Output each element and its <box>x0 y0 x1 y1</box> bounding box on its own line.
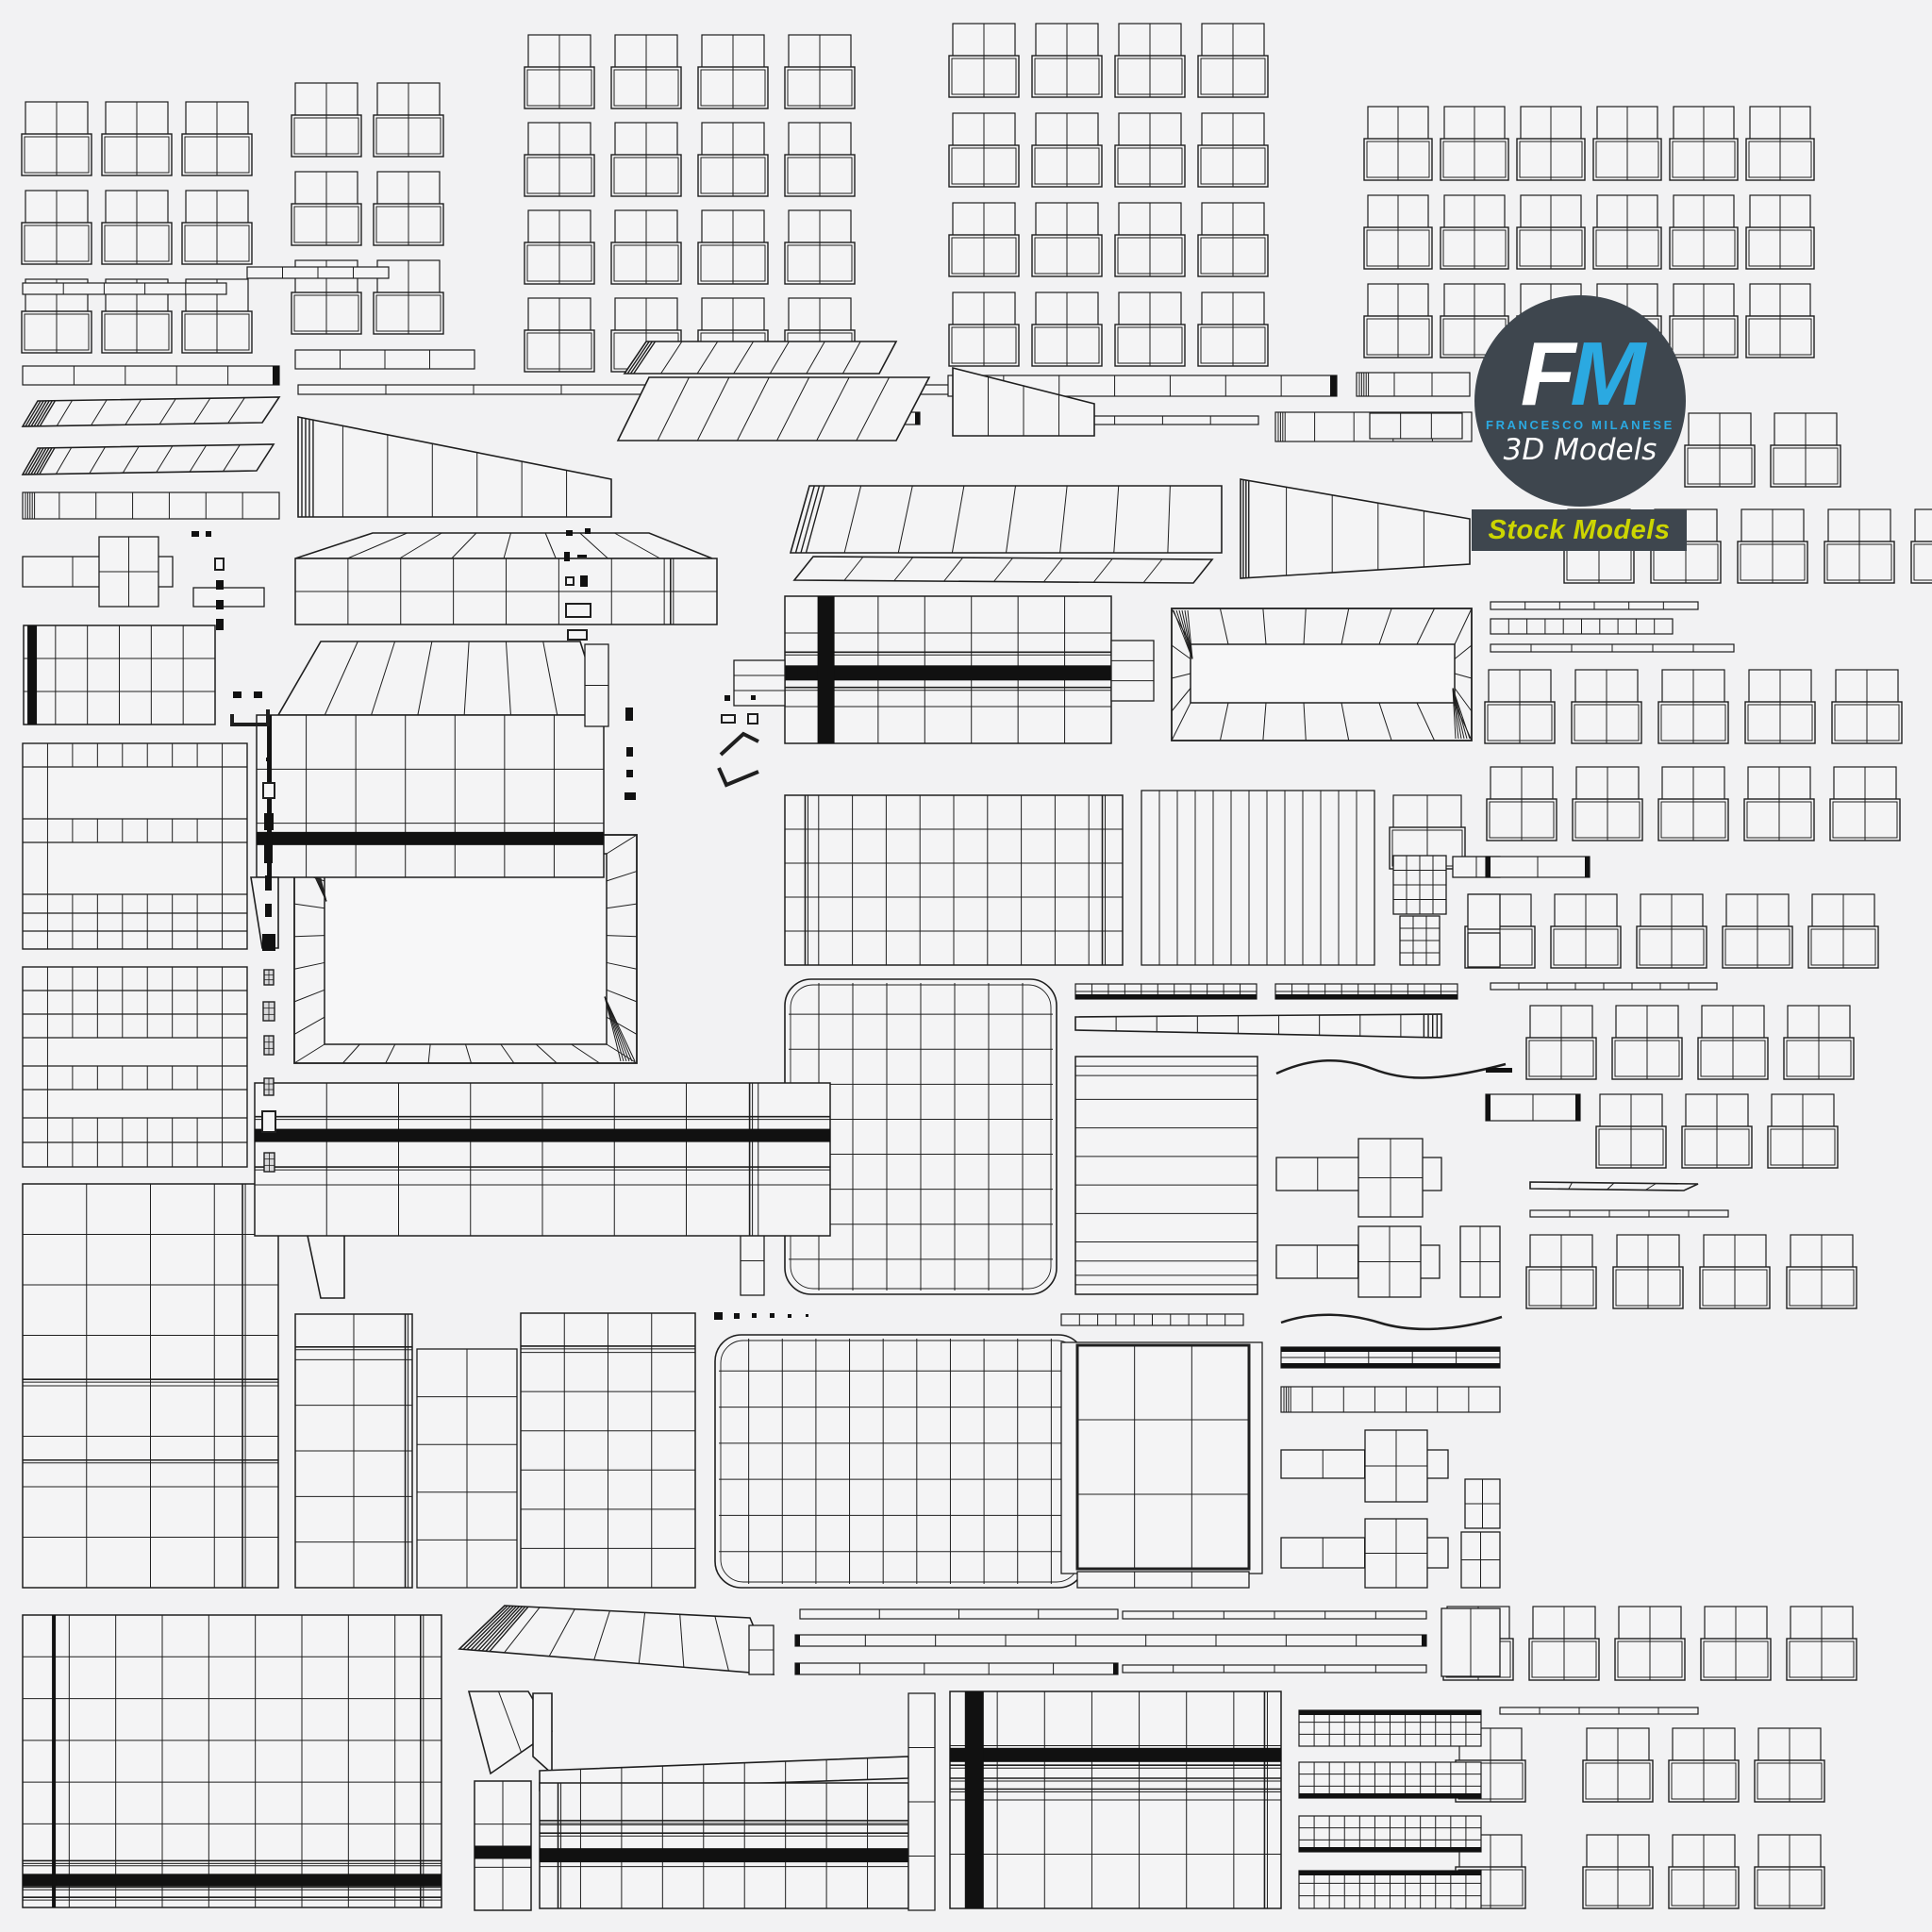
uv-island-rail <box>1299 1762 1481 1798</box>
uv-island-table <box>23 743 247 949</box>
uv-mark <box>566 604 591 617</box>
uv-island-grid <box>1400 916 1440 965</box>
uv-island-strip <box>23 492 279 519</box>
uv-curve <box>721 734 758 755</box>
uv-mark <box>626 770 633 777</box>
uv-mark <box>264 970 274 985</box>
uv-mark <box>564 552 570 561</box>
uv-island-unit-grid <box>1526 1235 1857 1308</box>
uv-island-quad <box>618 377 929 441</box>
uv-island-unit-grid <box>291 83 443 334</box>
uv-island-frame <box>1172 608 1472 741</box>
uv-island-band <box>255 1083 830 1236</box>
uv-mark <box>577 555 587 558</box>
uv-mark <box>216 600 224 609</box>
uv-island-quad <box>459 1606 774 1674</box>
uv-island-grid <box>1358 1226 1421 1297</box>
uv-island-rail <box>1275 984 1457 999</box>
wireframe-canvas <box>0 0 1932 1932</box>
uv-curve <box>719 768 758 785</box>
uv-wireframe-sheet: FM FRANCESCO MILANESE 3D Models Stock Mo… <box>0 0 1932 1932</box>
uv-mark <box>216 580 224 590</box>
uv-mark <box>264 844 273 863</box>
uv-island-grid <box>749 1625 774 1674</box>
uv-island-rail <box>1299 1816 1481 1852</box>
uv-island-strip <box>1123 1665 1426 1673</box>
uv-island-quad <box>533 1693 552 1774</box>
uv-island-rail <box>1299 1871 1481 1908</box>
uv-island-grid <box>193 588 264 607</box>
uv-island-strip <box>247 267 389 278</box>
uv-island-band <box>23 1184 278 1588</box>
uv-island-strip <box>1500 1707 1698 1714</box>
uv-island-band <box>950 1691 1281 1908</box>
uv-island-grid <box>1460 1226 1500 1297</box>
uv-island-band <box>23 1615 441 1907</box>
uv-mark <box>233 691 241 698</box>
uv-island-unit-grid <box>1583 1835 1824 1908</box>
uv-mark <box>263 1002 275 1021</box>
uv-island-unit-grid <box>1526 1006 1854 1079</box>
uv-island-quad <box>1530 1182 1698 1191</box>
uv-island-strip <box>1061 1314 1243 1325</box>
uv-island-grid <box>1365 1430 1427 1502</box>
uv-mark <box>264 1078 274 1095</box>
uv-island-strip <box>1281 1387 1500 1412</box>
uv-island-quad <box>794 557 1212 583</box>
uv-mark <box>724 695 730 701</box>
uv-island-unit-grid <box>1596 1094 1838 1168</box>
uv-island-band <box>257 715 604 877</box>
uv-island-quad <box>625 341 896 374</box>
logo-tagline: 3D Models <box>1504 433 1657 467</box>
uv-mark <box>266 758 271 761</box>
uv-mark <box>264 813 274 830</box>
uv-island-grid <box>417 1349 517 1588</box>
uv-mark <box>265 875 272 891</box>
uv-island-strip <box>23 283 226 294</box>
uv-mark <box>262 934 275 951</box>
uv-mark <box>254 691 262 698</box>
uv-mark <box>192 531 199 537</box>
uv-island-grid <box>1468 933 1500 967</box>
uv-island-strip <box>1491 602 1698 609</box>
uv-island-grid <box>734 660 785 706</box>
uv-mark <box>216 619 224 630</box>
uv-island-table <box>23 967 247 1167</box>
uv-island-strip <box>1123 1611 1426 1619</box>
uv-island-unit-grid <box>1583 1728 1824 1802</box>
uv-island-unit-grid <box>1685 413 1840 487</box>
uv-island-band <box>1077 1345 1249 1569</box>
uv-island-quad <box>298 417 611 517</box>
uv-island-rail <box>1281 1347 1500 1368</box>
uv-mark <box>585 528 591 534</box>
uv-island-unit-grid <box>1465 894 1878 968</box>
uv-island-unit-grid <box>1487 767 1900 841</box>
uv-island-grid <box>741 1226 764 1295</box>
uv-island-grid <box>1358 1139 1423 1217</box>
uv-island-quad <box>295 533 712 558</box>
uv-island-unit-grid <box>949 24 1268 366</box>
uv-mark <box>734 1313 740 1319</box>
uv-island-rail <box>1299 1710 1481 1746</box>
uv-mark <box>568 630 587 640</box>
uv-mark <box>806 1314 808 1317</box>
uv-island-strip <box>800 1609 1118 1619</box>
uv-island-band <box>1075 1057 1257 1294</box>
uv-island-band <box>785 596 1111 743</box>
uv-island-quad <box>23 397 279 426</box>
uv-island-grid <box>1111 641 1154 701</box>
uv-mark <box>265 904 272 917</box>
uv-island-strip <box>1486 857 1590 877</box>
logo-letter-f: F <box>1521 324 1571 425</box>
uv-island-grid <box>1461 1532 1500 1588</box>
uv-mark <box>626 747 633 757</box>
uv-curve <box>1281 1315 1502 1329</box>
uv-mark <box>215 558 224 570</box>
uv-island-band <box>521 1313 695 1588</box>
uv-island-grid <box>908 1693 935 1910</box>
uv-island-quad <box>307 1231 344 1298</box>
uv-island-strip <box>1491 619 1673 634</box>
uv-island-rail <box>1075 984 1257 999</box>
stock-models-label: Stock Models <box>1489 515 1671 546</box>
fm-logo-circle: FM FRANCESCO MILANESE 3D Models <box>1474 295 1686 507</box>
uv-island-grid <box>1393 856 1446 914</box>
uv-mark <box>264 1036 274 1055</box>
uv-mark <box>566 577 574 585</box>
uv-mark <box>580 575 588 587</box>
uv-island-grid <box>1077 1572 1249 1588</box>
uv-island-grid <box>1441 1608 1500 1676</box>
uv-island-quad <box>23 444 274 475</box>
uv-mark <box>788 1314 791 1318</box>
uv-mark <box>264 1153 275 1172</box>
uv-curve <box>1276 1060 1506 1077</box>
uv-island-quad <box>1241 479 1470 578</box>
fm-monogram: FM <box>1521 335 1641 414</box>
uv-island-rounded-grid <box>715 1335 1085 1588</box>
uv-island-grid <box>1468 894 1500 929</box>
uv-mark <box>1486 1068 1512 1073</box>
uv-island-strip <box>795 1635 1426 1646</box>
uv-mark <box>625 792 636 800</box>
uv-island-unit-grid <box>525 35 855 372</box>
uv-island-band <box>24 625 215 724</box>
uv-island-unit-grid <box>1443 1607 1857 1680</box>
uv-island-band <box>295 1314 412 1588</box>
uv-mark <box>751 695 756 700</box>
uv-mark <box>722 715 735 723</box>
uv-mark <box>770 1313 774 1318</box>
logo-author-name: FRANCESCO MILANESE <box>1486 418 1674 432</box>
uv-mark <box>714 1312 723 1320</box>
uv-island-quad <box>791 486 1222 553</box>
uv-island-unit-grid <box>22 102 252 353</box>
uv-island-grid <box>1365 1519 1427 1588</box>
uv-island-quad <box>278 641 604 715</box>
uv-island-strip <box>295 350 475 369</box>
stock-models-badge: Stock Models <box>1472 509 1687 551</box>
uv-island-strip <box>1370 413 1462 439</box>
uv-island-strip <box>23 366 279 385</box>
uv-island-band <box>475 1781 531 1910</box>
uv-island-band <box>540 1783 908 1908</box>
uv-mark <box>748 714 758 724</box>
uv-mark <box>752 1313 757 1318</box>
uv-mark <box>262 1111 275 1132</box>
uv-island-grid <box>585 644 608 726</box>
uv-island-grid <box>99 537 158 607</box>
uv-mark <box>625 708 633 721</box>
uv-island-strip <box>795 1663 1118 1674</box>
uv-island-strip <box>1530 1210 1728 1217</box>
uv-island-band <box>785 795 1123 965</box>
uv-island-strip <box>1491 983 1717 990</box>
uv-mark <box>263 783 275 798</box>
uv-island-quad <box>1075 1014 1441 1038</box>
uv-island-strip <box>1486 1094 1580 1121</box>
uv-island-band <box>295 558 717 625</box>
logo-letter-m: M <box>1570 324 1640 425</box>
uv-island-grid <box>1465 1479 1500 1528</box>
uv-island-strip <box>1491 644 1734 652</box>
uv-mark <box>566 530 573 536</box>
uv-island-grid <box>1141 791 1374 965</box>
uv-island-unit-grid <box>1485 670 1902 743</box>
uv-island-strip <box>1357 373 1470 396</box>
uv-mark <box>206 531 211 537</box>
